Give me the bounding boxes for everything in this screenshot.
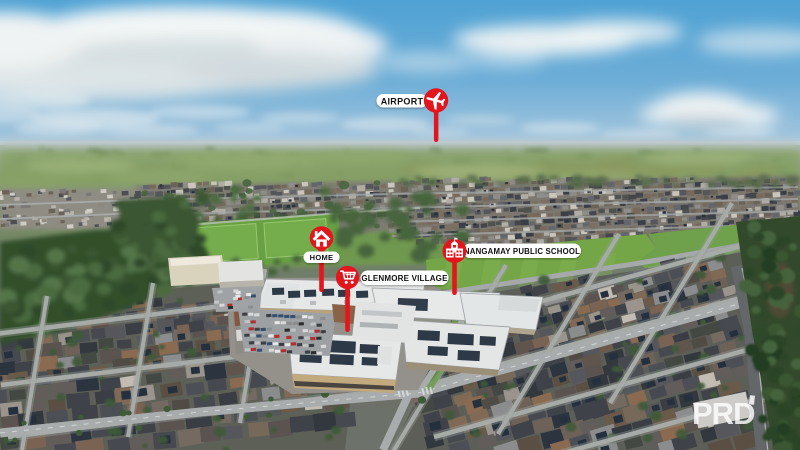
svg-text:NANGAMAY PUBLIC SCHOOL: NANGAMAY PUBLIC SCHOOL xyxy=(464,247,580,256)
svg-text:GLENMORE VILLAGE: GLENMORE VILLAGE xyxy=(361,274,448,283)
svg-text:PRD: PRD xyxy=(692,396,755,431)
svg-text:AIRPORT: AIRPORT xyxy=(381,96,424,106)
svg-text:HOME: HOME xyxy=(310,253,334,262)
